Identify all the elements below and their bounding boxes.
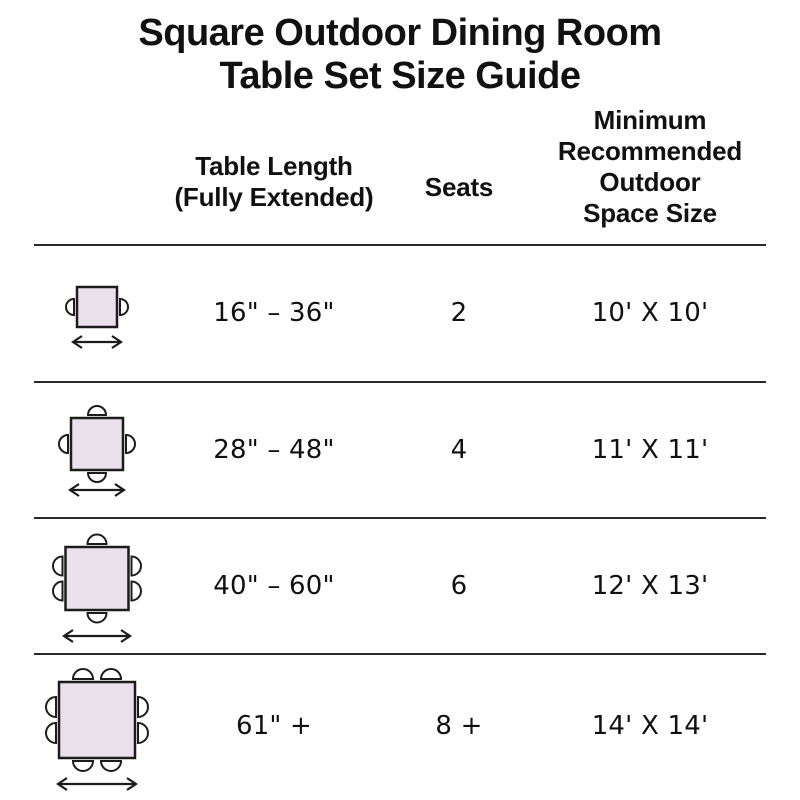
- extension-arrow-icon: [73, 336, 121, 348]
- chair-icon: [101, 761, 121, 771]
- seats-value: 6: [384, 519, 534, 653]
- table-length-value: 16" – 36": [164, 246, 384, 381]
- chair-icon: [46, 723, 56, 743]
- page-title: Square Outdoor Dining Room Table Set Siz…: [34, 0, 766, 99]
- table-top: [66, 547, 129, 610]
- chair-icon: [53, 581, 62, 600]
- space-size-value: 11' X 11': [534, 383, 766, 517]
- space-size-value: 12' X 13': [534, 519, 766, 653]
- table-length-value: 61" +: [164, 655, 384, 797]
- chair-icon: [101, 669, 121, 679]
- table-with-chairs-icon: [34, 383, 164, 517]
- chair-icon: [73, 761, 93, 771]
- extension-arrow-icon: [64, 630, 130, 642]
- chair-icon: [138, 723, 148, 743]
- table-top: [71, 418, 123, 470]
- seats-value: 4: [384, 383, 534, 517]
- chair-icon: [132, 581, 141, 600]
- table-length-value: 40" – 60": [164, 519, 384, 653]
- space-size-value: 14' X 14': [534, 655, 766, 797]
- column-header-seats: Seats: [384, 172, 534, 243]
- table-diagram-4-seats: [34, 383, 164, 517]
- space-size-value: 10' X 10': [534, 246, 766, 381]
- table-diagram-2-seats: [34, 246, 164, 381]
- chair-icon: [132, 556, 142, 575]
- table-length-value: 28" – 48": [164, 383, 384, 517]
- chair-icon: [46, 697, 56, 717]
- seats-value: 2: [384, 246, 534, 381]
- table-top: [77, 287, 117, 327]
- table-row: 61" + 8 + 14' X 14': [34, 653, 766, 797]
- table-with-chairs-icon: [34, 246, 164, 381]
- chair-icon: [73, 669, 93, 679]
- chair-icon: [126, 435, 135, 453]
- table-row: 28" – 48" 4 11' X 11': [34, 381, 766, 517]
- seats-value: 8 +: [384, 655, 534, 797]
- chair-icon: [138, 697, 148, 717]
- table-with-chairs-icon: [34, 519, 164, 653]
- column-header-space-size: Minimum Recommended Outdoor Space Size: [534, 105, 766, 244]
- table-row: 16" – 36" 2 10' X 10': [34, 244, 766, 381]
- table-diagram-8-seats: [34, 655, 164, 797]
- table-top: [59, 682, 135, 758]
- chair-icon: [120, 299, 128, 315]
- chair-icon: [88, 406, 106, 415]
- chair-icon: [88, 534, 107, 544]
- chair-icon: [53, 556, 63, 575]
- chair-icon: [66, 299, 74, 315]
- table-header-row: Table Length (Fully Extended) Seats Mini…: [34, 99, 766, 244]
- table-row: 40" – 60" 6 12' X 13': [34, 517, 766, 653]
- size-guide-infographic: Square Outdoor Dining Room Table Set Siz…: [0, 0, 800, 800]
- chair-icon: [88, 613, 107, 623]
- extension-arrow-icon: [70, 484, 124, 496]
- column-header-table-length: Table Length (Fully Extended): [164, 151, 384, 243]
- table-diagram-6-seats: [34, 519, 164, 653]
- table-with-chairs-icon: [34, 655, 164, 797]
- extension-arrow-icon: [58, 778, 136, 790]
- chair-icon: [59, 435, 68, 453]
- chair-icon: [88, 473, 106, 482]
